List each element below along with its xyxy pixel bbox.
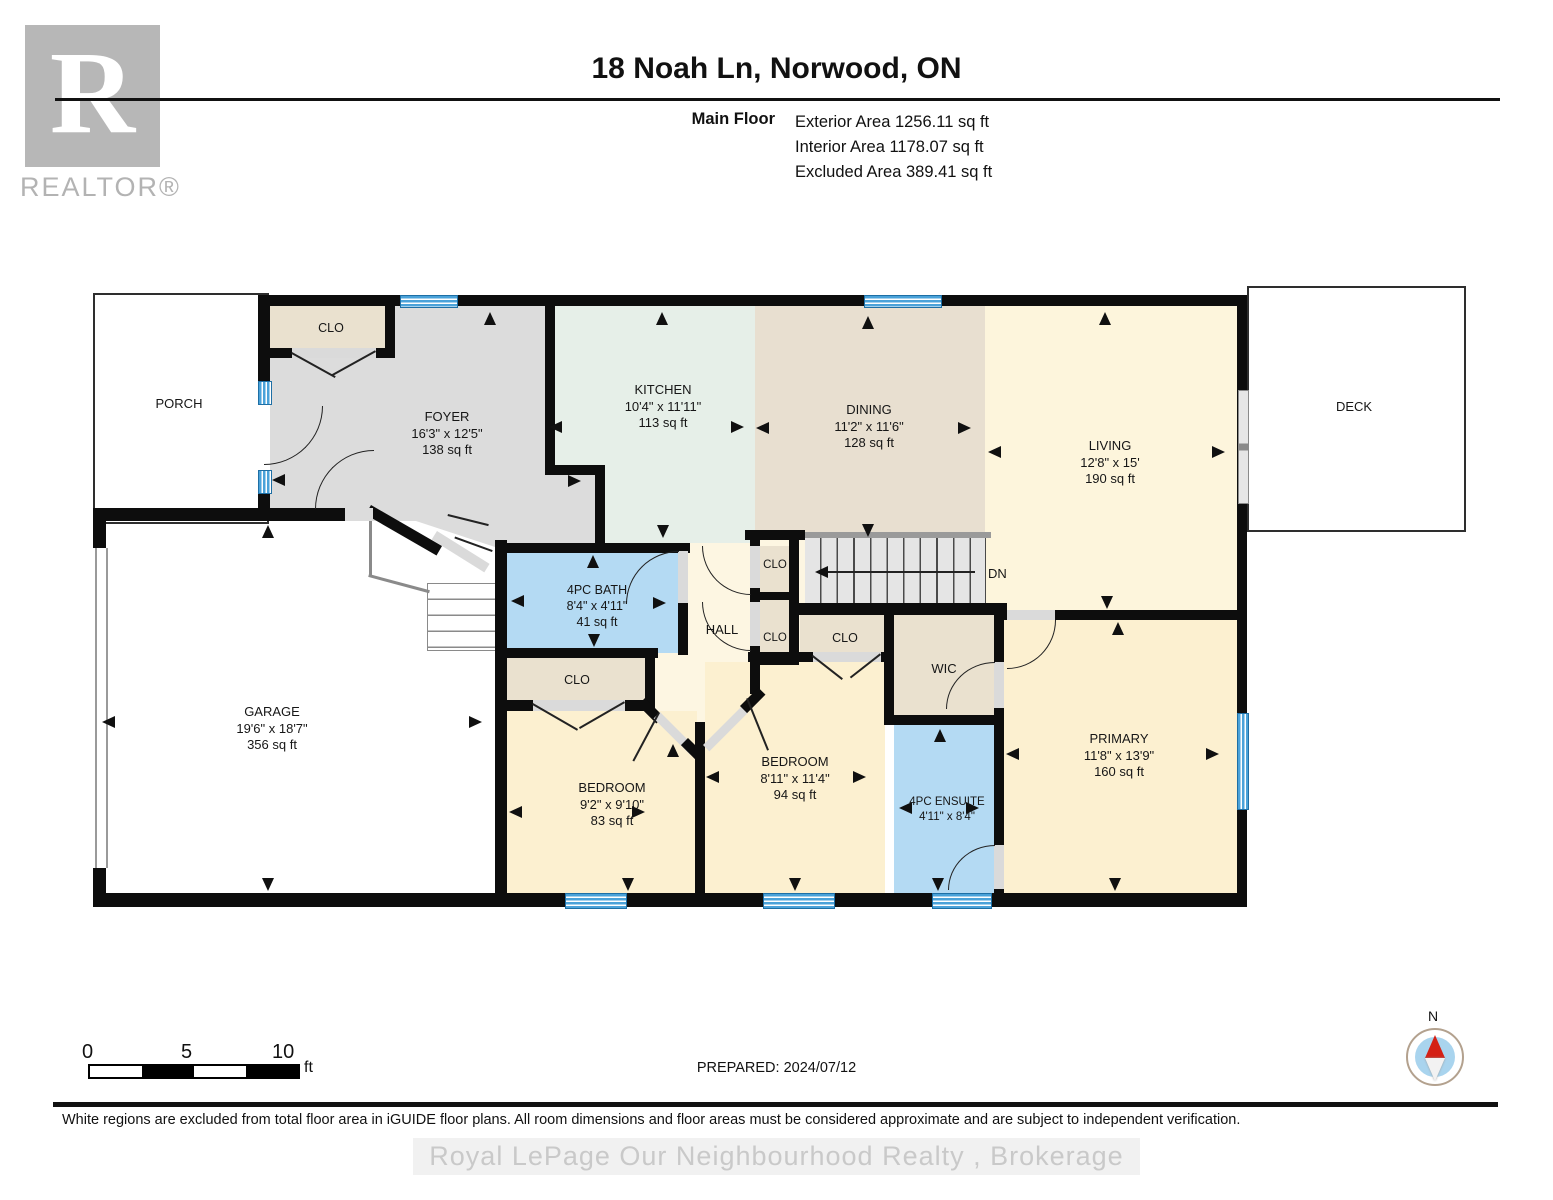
measure-arrow-icon <box>656 312 668 325</box>
room-label-bedroom1: BEDROOM 9'2" x 9'10" 83 sq ft <box>542 780 682 830</box>
room-dims: 11'8" x 13'9" <box>1049 748 1189 765</box>
measure-arrow-icon <box>509 806 522 818</box>
wall <box>500 648 658 658</box>
stairs-label-text: DN <box>988 566 1028 583</box>
room-label-hall: HALL <box>687 622 757 639</box>
room-name: BEDROOM <box>725 754 865 771</box>
measure-arrow-icon <box>549 421 562 433</box>
room-name: CLO <box>810 630 880 646</box>
measure-arrow-icon <box>272 474 285 486</box>
room-dims: 4'11" x 8'4" <box>887 810 1007 825</box>
room-name: LIVING <box>1040 438 1180 455</box>
window <box>258 381 272 405</box>
door-opening <box>1007 610 1055 620</box>
room-name: HALL <box>687 622 757 639</box>
measure-arrow-icon <box>1212 446 1225 458</box>
measure-arrow-icon <box>862 316 874 329</box>
room-area: 94 sq ft <box>725 787 865 804</box>
wall <box>745 530 805 540</box>
garage-stairs-railing <box>369 516 372 576</box>
room-name: DINING <box>799 402 939 419</box>
brokerage-watermark-text: Royal LePage Our Neighbourhood Realty , … <box>413 1138 1139 1175</box>
garage-door <box>95 548 108 868</box>
compass: N <box>1398 1008 1468 1098</box>
room-label-wic: WIC <box>909 661 979 678</box>
wall <box>789 603 1007 615</box>
room-name: CLO <box>757 558 793 573</box>
room-name: BEDROOM <box>542 780 682 797</box>
wall <box>884 715 1004 725</box>
window <box>1237 713 1249 810</box>
measure-arrow-icon <box>1006 748 1019 760</box>
sliding-door <box>1238 390 1249 504</box>
room-area: 356 sq ft <box>202 737 342 754</box>
window <box>932 893 992 909</box>
room-label-primary: PRIMARY 11'8" x 13'9" 160 sq ft <box>1049 731 1189 781</box>
room-name: CLO <box>296 320 366 336</box>
window <box>864 295 942 308</box>
room-name: 4PC BATH <box>527 582 667 598</box>
wall <box>500 543 690 553</box>
window <box>400 295 458 308</box>
measure-arrow-icon <box>568 475 581 487</box>
room-dims: 16'3" x 12'5" <box>377 426 517 443</box>
measure-arrow-icon <box>511 595 524 607</box>
wall <box>93 893 1247 907</box>
room-name: KITCHEN <box>593 382 733 399</box>
door-opening <box>994 662 1004 708</box>
room-label-porch: PORCH <box>109 396 249 413</box>
measure-arrow-icon <box>622 878 634 891</box>
measure-arrow-icon <box>789 878 801 891</box>
window <box>565 893 627 909</box>
stairs-direction-line <box>827 571 975 573</box>
room-label-ensuite: 4PC ENSUITE 4'11" x 8'4" <box>887 795 1007 824</box>
room-label-foyer: FOYER 16'3" x 12'5" 138 sq ft <box>377 409 517 459</box>
window <box>763 893 835 909</box>
compass-north-label: N <box>1398 1008 1468 1024</box>
measure-arrow-icon <box>706 771 719 783</box>
garage-stairs-railing-diagonal <box>368 574 430 593</box>
measure-arrow-icon <box>1112 622 1124 635</box>
measure-arrow-icon <box>657 525 669 538</box>
room-label-garage: GARAGE 19'6" x 18'7" 356 sq ft <box>202 704 342 754</box>
window <box>258 470 272 494</box>
compass-south-needle <box>1425 1058 1445 1081</box>
room-area: 113 sq ft <box>593 415 733 432</box>
wall <box>495 540 507 907</box>
measure-arrow-icon <box>1109 878 1121 891</box>
room-dims: 11'2" x 11'6" <box>799 419 939 436</box>
room-dims: 8'11" x 11'4" <box>725 771 865 788</box>
room-area: 138 sq ft <box>377 442 517 459</box>
room-label-closet-foyer: CLO <box>296 320 366 336</box>
measure-arrow-icon <box>262 525 274 538</box>
door-opening <box>994 845 1004 889</box>
room-dims: 12'8" x 15' <box>1040 455 1180 472</box>
room-area: 41 sq ft <box>527 614 667 630</box>
room-foyer-ext <box>495 472 600 543</box>
measure-arrow-icon <box>667 744 679 757</box>
room-name: PRIMARY <box>1049 731 1189 748</box>
measure-arrow-icon <box>484 312 496 325</box>
room-label-bedroom2: BEDROOM 8'11" x 11'4" 94 sq ft <box>725 754 865 804</box>
wall <box>93 508 106 548</box>
compass-rose-icon <box>1406 1028 1464 1086</box>
room-label-kitchen: KITCHEN 10'4" x 11'11" 113 sq ft <box>593 382 733 432</box>
wall <box>385 295 395 358</box>
room-area: 128 sq ft <box>799 435 939 452</box>
measure-arrow-icon <box>932 878 944 891</box>
stairs-down-label: DN <box>988 566 1028 583</box>
room-dims: 19'6" x 18'7" <box>202 721 342 738</box>
measure-arrow-icon <box>1206 748 1219 760</box>
room-name: 4PC ENSUITE <box>887 795 1007 810</box>
measure-arrow-icon <box>469 716 482 728</box>
room-label-closet-bedroom2: CLO <box>810 630 880 646</box>
brokerage-watermark: Royal LePage Our Neighbourhood Realty , … <box>0 1138 1553 1175</box>
room-label-deck: DECK <box>1284 399 1424 416</box>
wall <box>545 465 602 475</box>
measure-arrow-icon <box>588 634 600 647</box>
wall <box>545 300 555 472</box>
door-opening <box>678 551 688 603</box>
measure-arrow-icon <box>1099 312 1111 325</box>
measure-arrow-icon <box>934 729 946 742</box>
measure-arrow-icon <box>262 878 274 891</box>
room-label-closet-hall-upper: CLO <box>757 558 793 573</box>
stairs-direction-arrow-icon <box>815 566 828 578</box>
room-dims: 10'4" x 11'11" <box>593 399 733 416</box>
room-name: CLO <box>542 672 612 688</box>
measure-arrow-icon <box>958 422 971 434</box>
measure-arrow-icon <box>756 422 769 434</box>
room-area: 160 sq ft <box>1049 764 1189 781</box>
wall <box>93 508 345 521</box>
room-name: DECK <box>1284 399 1424 416</box>
measure-arrow-icon <box>1101 596 1113 609</box>
wall <box>1237 295 1247 907</box>
disclaimer-text: White regions are excluded from total fl… <box>62 1112 1240 1128</box>
room-label-dining: DINING 11'2" x 11'6" 128 sq ft <box>799 402 939 452</box>
room-name: GARAGE <box>202 704 342 721</box>
room-label-closet-bath: CLO <box>542 672 612 688</box>
room-label-living: LIVING 12'8" x 15' 190 sq ft <box>1040 438 1180 488</box>
room-label-closet-hall-lower: CLO <box>757 631 793 646</box>
room-dims: 9'2" x 9'10" <box>542 797 682 814</box>
room-name: CLO <box>757 631 793 646</box>
footer-divider <box>53 1102 1498 1107</box>
wall <box>595 465 605 550</box>
room-closet-hall-lower <box>758 600 792 655</box>
measure-arrow-icon <box>988 446 1001 458</box>
door-opening <box>345 508 373 521</box>
room-dims: 8'4" x 4'11" <box>527 598 667 614</box>
measure-arrow-icon <box>102 716 115 728</box>
room-name: FOYER <box>377 409 517 426</box>
measure-arrow-icon <box>862 524 874 537</box>
room-name: WIC <box>909 661 979 678</box>
prepared-date: PREPARED: 2024/07/12 <box>0 1060 1553 1076</box>
wall <box>884 612 894 725</box>
room-area: 190 sq ft <box>1040 471 1180 488</box>
room-label-bath: 4PC BATH 8'4" x 4'11" 41 sq ft <box>527 582 667 630</box>
room-name: PORCH <box>109 396 249 413</box>
floor-plan: PORCH DECK FOYER 16'3" x 12'5" 138 sq ft… <box>0 0 1553 1200</box>
room-area: 83 sq ft <box>542 813 682 830</box>
measure-arrow-icon <box>587 555 599 568</box>
compass-north-needle <box>1425 1035 1445 1058</box>
garage-stairs <box>427 583 501 651</box>
